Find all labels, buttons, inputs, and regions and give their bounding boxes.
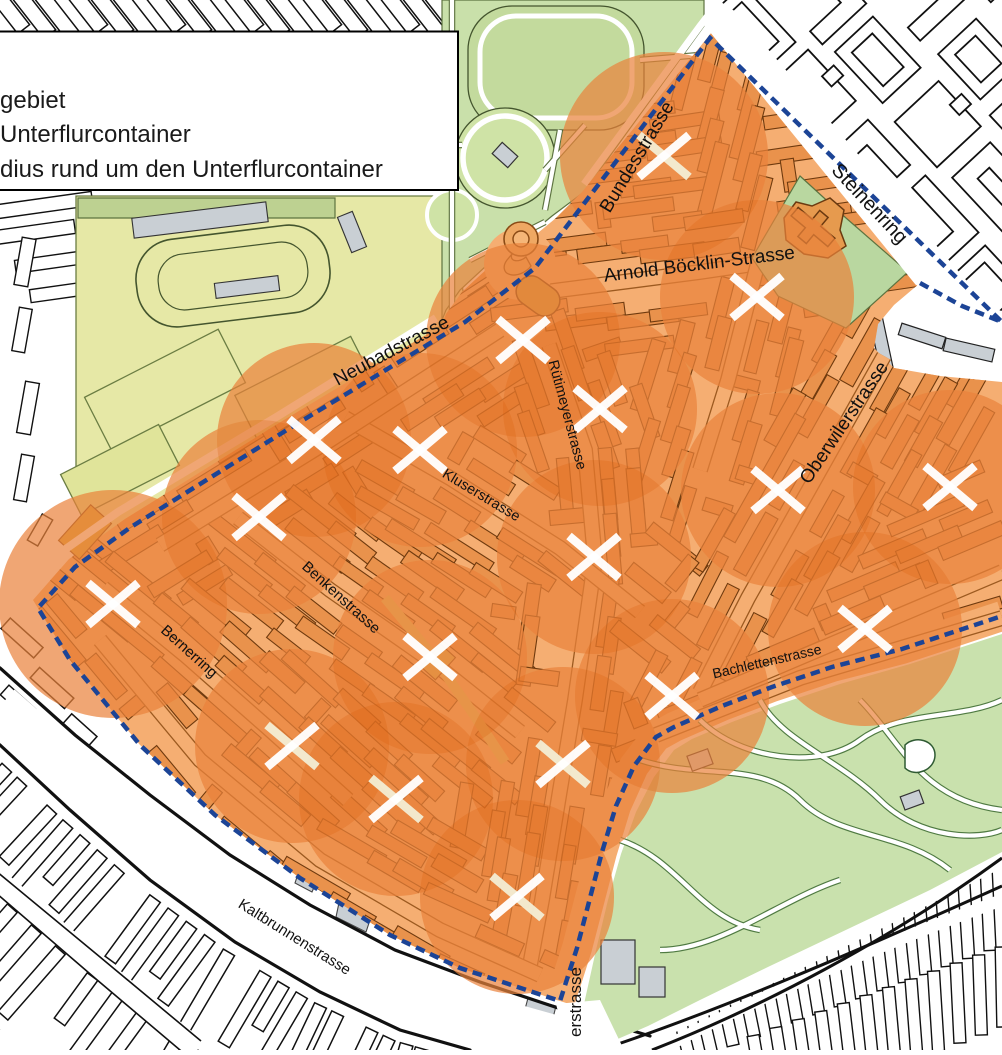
svg-text:Unterflurcontainer: Unterflurcontainer <box>0 121 191 148</box>
svg-text:dius rund um den Unterflurcont: dius rund um den Unterflurcontainer <box>0 156 383 183</box>
svg-text:gebiet: gebiet <box>0 87 66 114</box>
svg-text:erstrasse: erstrasse <box>566 967 585 1037</box>
